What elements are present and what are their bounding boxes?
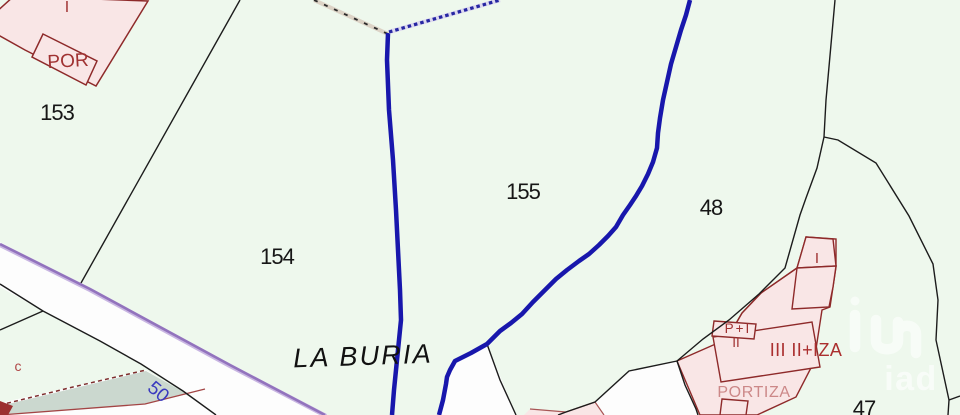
svg-text:c: c bbox=[15, 358, 22, 374]
svg-text:154: 154 bbox=[260, 244, 294, 269]
svg-text:48: 48 bbox=[700, 195, 723, 220]
svg-text:III II+IZA: III II+IZA bbox=[770, 340, 843, 360]
svg-text:47: 47 bbox=[853, 396, 876, 415]
svg-text:POR: POR bbox=[47, 50, 89, 73]
svg-text:PORTIZA: PORTIZA bbox=[717, 384, 790, 401]
svg-text:155: 155 bbox=[506, 179, 540, 204]
svg-text:P+I: P+I bbox=[725, 321, 752, 336]
svg-text:II: II bbox=[732, 335, 740, 350]
svg-text:iad: iad bbox=[884, 360, 938, 398]
svg-text:153: 153 bbox=[40, 100, 74, 125]
svg-text:I: I bbox=[65, 0, 69, 16]
svg-text:I: I bbox=[815, 250, 819, 267]
svg-text:LA BURIA: LA BURIA bbox=[293, 339, 434, 374]
